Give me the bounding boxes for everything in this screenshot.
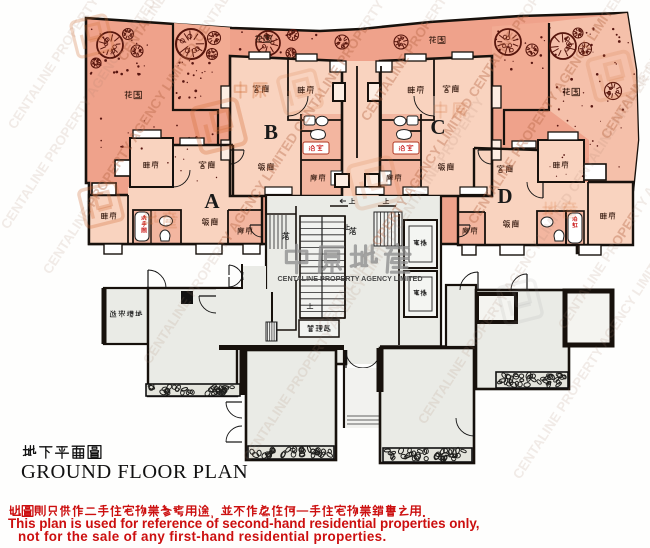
svg-text:A: A [204, 189, 220, 213]
svg-text:CENTALINE PROPERTY AGENCY LIMI: CENTALINE PROPERTY AGENCY LIMITED [277, 274, 422, 283]
svg-text:not for the sale of any first-: not for the sale of any first-hand resid… [18, 529, 387, 544]
svg-text:GROUND FLOOR PLAN: GROUND FLOOR PLAN [21, 461, 248, 483]
svg-text:B: B [264, 120, 278, 144]
